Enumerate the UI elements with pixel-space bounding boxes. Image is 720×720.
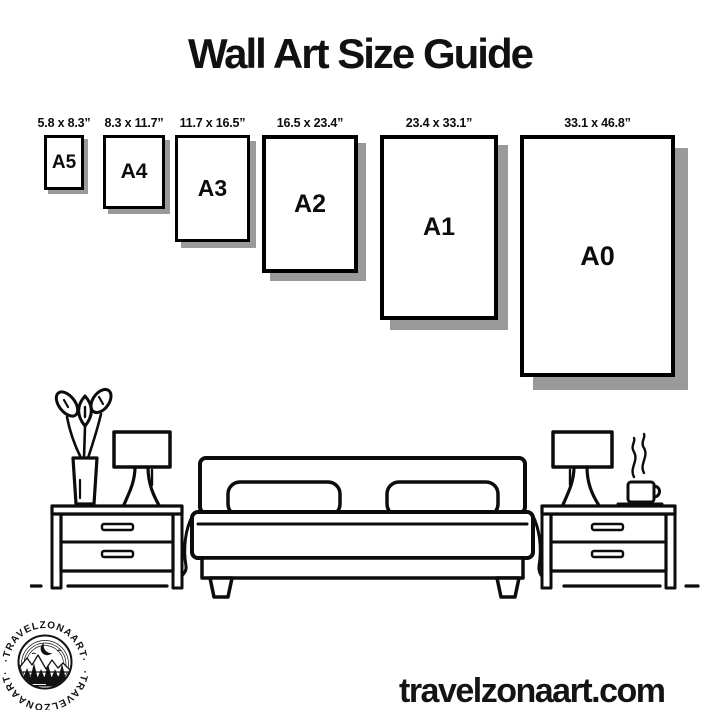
paper-code-a4: A4 (121, 160, 148, 184)
website-url: travelzonaart.com (399, 672, 665, 711)
table-lamp-right-illustration (553, 432, 612, 507)
paper-a2: A2 (262, 135, 358, 273)
page-title: Wall Art Size Guide (0, 30, 720, 78)
paper-a0: A0 (520, 135, 675, 377)
nightstand-left-illustration (52, 506, 182, 588)
bedroom-illustration (30, 383, 710, 605)
size-dimensions-label-a5: 5.8 x 8.3” (38, 116, 91, 130)
paper-code-a0: A0 (580, 241, 615, 272)
brand-badge: ·TRAVELZONAART· ·TRAVELZONAART· (2, 618, 88, 710)
size-dimensions-label-a0: 33.1 x 46.8” (564, 116, 630, 130)
water (15, 682, 75, 691)
bed-illustration (180, 458, 544, 597)
paper-a1: A1 (380, 135, 498, 320)
paper-a5: A5 (44, 135, 84, 190)
paper-code-a5: A5 (52, 152, 76, 174)
paper-a3: A3 (175, 135, 250, 242)
paper-a4: A4 (103, 135, 165, 209)
wall-art-size-guide-poster: Wall Art Size Guide 5.8 x 8.3”A58.3 x 11… (0, 0, 720, 720)
coffee-cup-illustration (618, 434, 662, 504)
paper-code-a3: A3 (198, 175, 227, 202)
size-dimensions-label-a1: 23.4 x 33.1” (406, 116, 472, 130)
nightstand-right-illustration (542, 506, 675, 588)
table-lamp-left-illustration (114, 432, 170, 507)
size-dimensions-label-a4: 8.3 x 11.7” (105, 116, 164, 130)
paper-code-a1: A1 (423, 213, 455, 242)
size-dimensions-label-a2: 16.5 x 23.4” (277, 116, 343, 130)
plant-vase-illustration (52, 386, 115, 504)
paper-code-a2: A2 (294, 190, 326, 219)
size-dimensions-label-a3: 11.7 x 16.5” (180, 116, 246, 130)
